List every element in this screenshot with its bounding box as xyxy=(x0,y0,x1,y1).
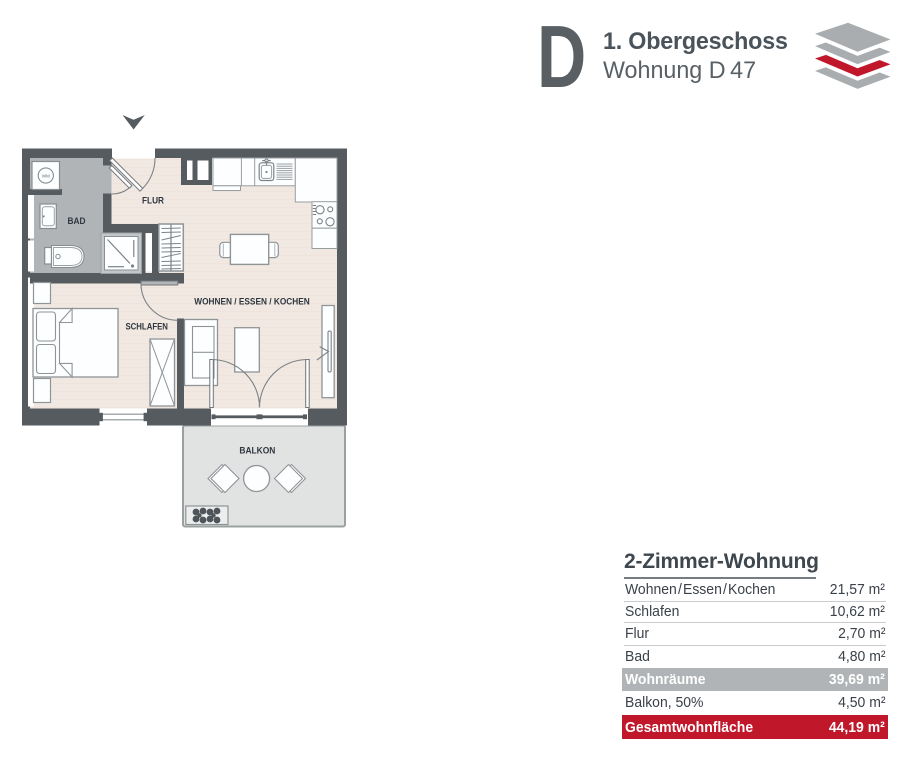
svg-text:SCHLAFEN: SCHLAFEN xyxy=(125,322,168,332)
svg-text:WOHNEN / ESSEN / KOCHEN: WOHNEN / ESSEN / KOCHEN xyxy=(194,297,310,307)
svg-text:BALKON: BALKON xyxy=(239,446,275,456)
svg-text:FLUR: FLUR xyxy=(142,196,164,206)
svg-text:WM: WM xyxy=(42,173,50,178)
svg-text:BAD: BAD xyxy=(68,216,86,226)
